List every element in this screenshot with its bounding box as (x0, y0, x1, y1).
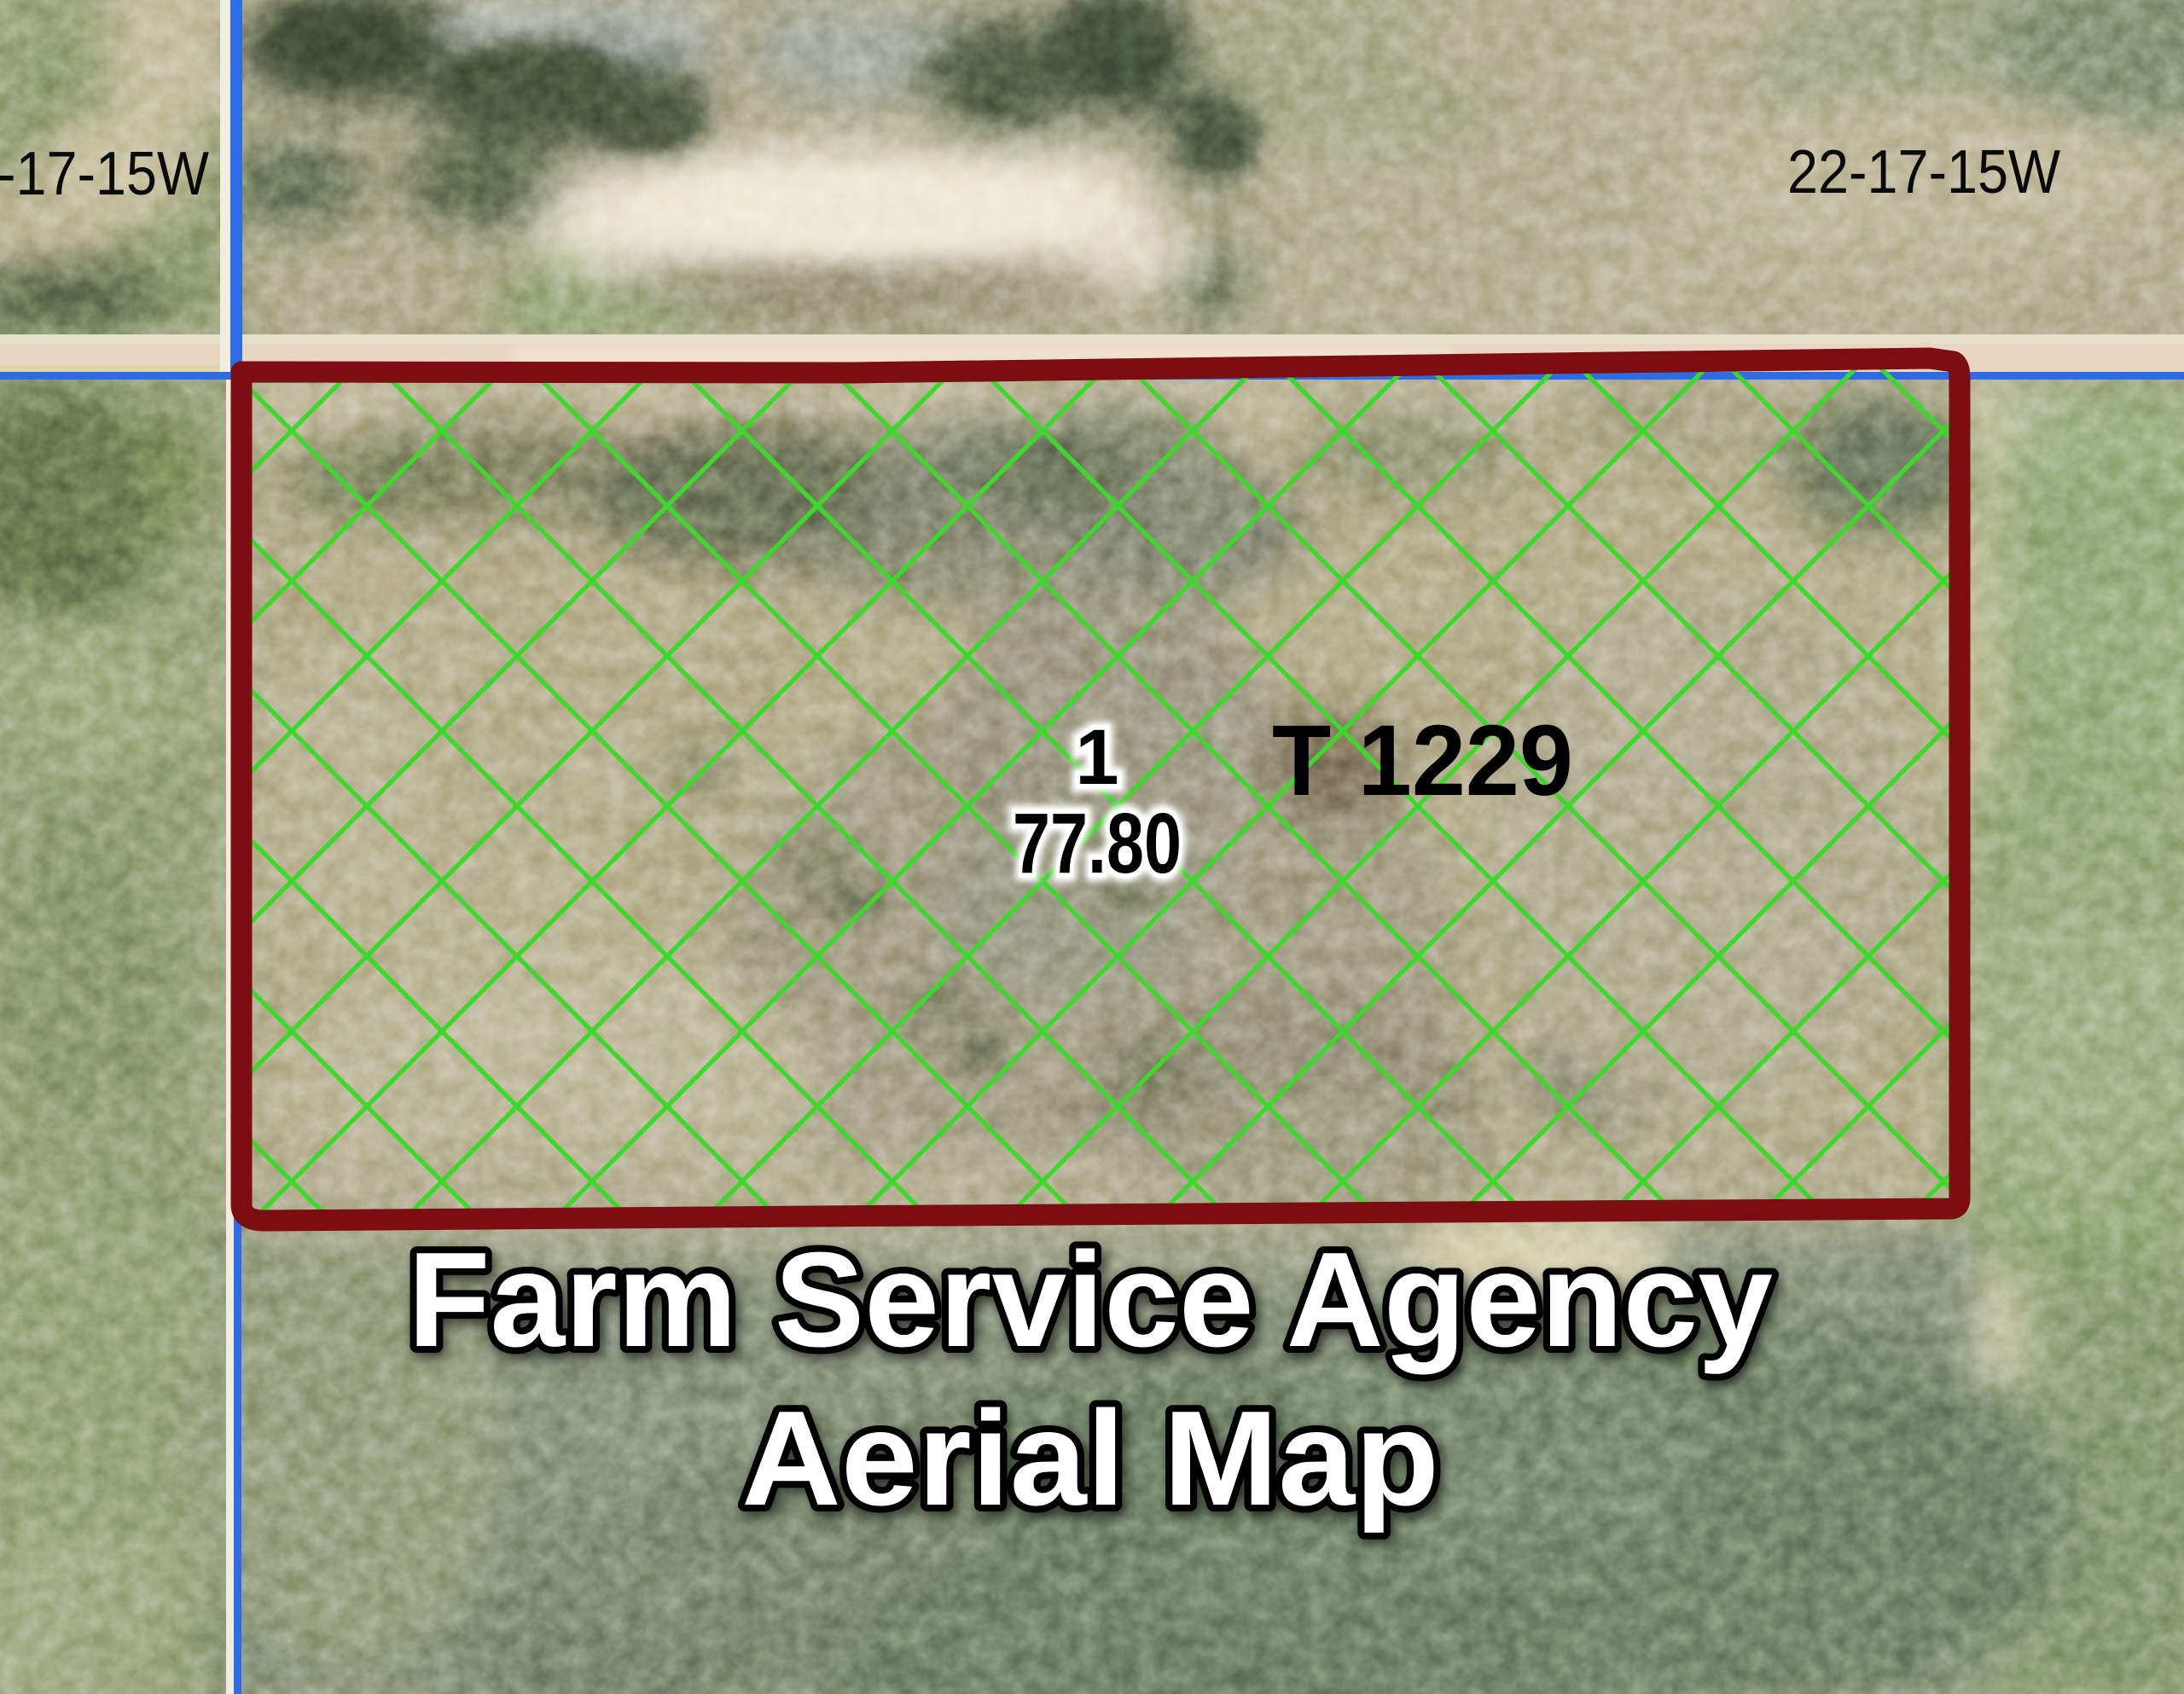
svg-text:Farm Service Agency: Farm Service Agency (408, 1225, 1773, 1375)
svg-text:22-17-15W: 22-17-15W (1787, 138, 2060, 206)
svg-text:1: 1 (1075, 714, 1118, 801)
svg-text:Aerial Map: Aerial Map (741, 1384, 1439, 1534)
svg-text:22-17-15W: 22-17-15W (0, 140, 209, 208)
svg-text:77.80: 77.80 (1013, 796, 1182, 891)
svg-text:T 1229: T 1229 (1272, 705, 1573, 817)
